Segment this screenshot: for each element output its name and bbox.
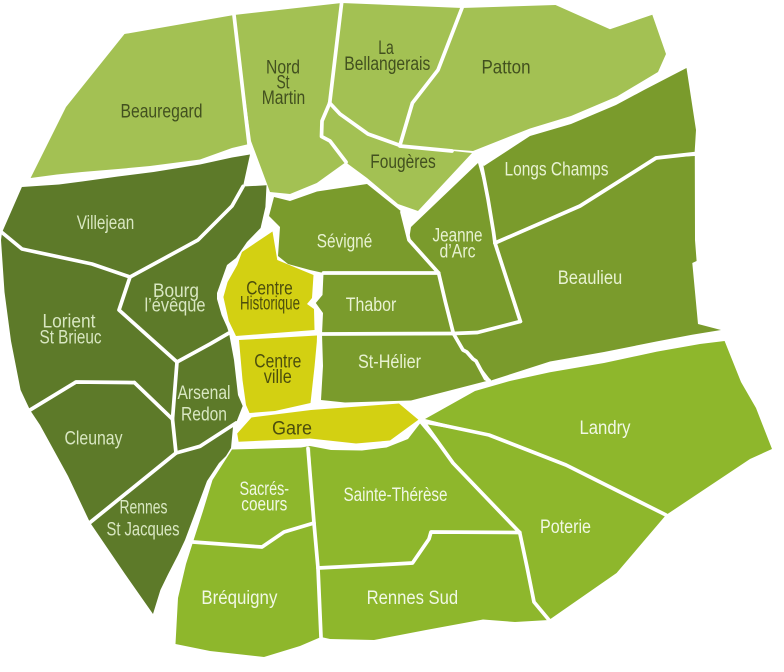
svg-text:d’Arc: d’Arc bbox=[440, 242, 476, 263]
svg-text:Beaulieu: Beaulieu bbox=[558, 268, 623, 289]
svg-text:Fougères: Fougères bbox=[370, 152, 436, 173]
svg-text:Gare: Gare bbox=[272, 419, 312, 440]
svg-text:Redon: Redon bbox=[181, 405, 227, 426]
svg-text:l’évêque: l’évêque bbox=[145, 296, 206, 317]
svg-text:Landry: Landry bbox=[580, 418, 631, 439]
svg-text:Bréquigny: Bréquigny bbox=[201, 588, 277, 609]
svg-text:Thabor: Thabor bbox=[346, 295, 397, 316]
svg-text:Martin: Martin bbox=[262, 88, 306, 109]
svg-text:St Brieuc: St Brieuc bbox=[40, 328, 102, 349]
svg-text:St Jacques: St Jacques bbox=[107, 520, 180, 541]
svg-text:coeurs: coeurs bbox=[241, 495, 287, 516]
svg-text:Sévigné: Sévigné bbox=[317, 232, 373, 253]
svg-text:Arsenal: Arsenal bbox=[178, 383, 231, 404]
svg-text:Beauregard: Beauregard bbox=[121, 102, 203, 123]
svg-text:ville: ville bbox=[264, 367, 292, 388]
svg-text:St-Hélier: St-Hélier bbox=[358, 352, 422, 373]
svg-text:Rennes Sud: Rennes Sud bbox=[367, 588, 459, 609]
svg-text:Rennes: Rennes bbox=[120, 498, 168, 519]
svg-text:Villejean: Villejean bbox=[77, 213, 135, 234]
svg-text:Longs Champs: Longs Champs bbox=[505, 160, 609, 181]
svg-text:Historique: Historique bbox=[240, 294, 300, 315]
svg-text:Poterie: Poterie bbox=[540, 517, 591, 538]
svg-text:Cleunay: Cleunay bbox=[65, 429, 123, 450]
svg-text:Sainte-Thérèse: Sainte-Thérèse bbox=[344, 485, 448, 506]
svg-text:Patton: Patton bbox=[482, 58, 531, 79]
svg-text:Bellangerais: Bellangerais bbox=[344, 54, 430, 75]
